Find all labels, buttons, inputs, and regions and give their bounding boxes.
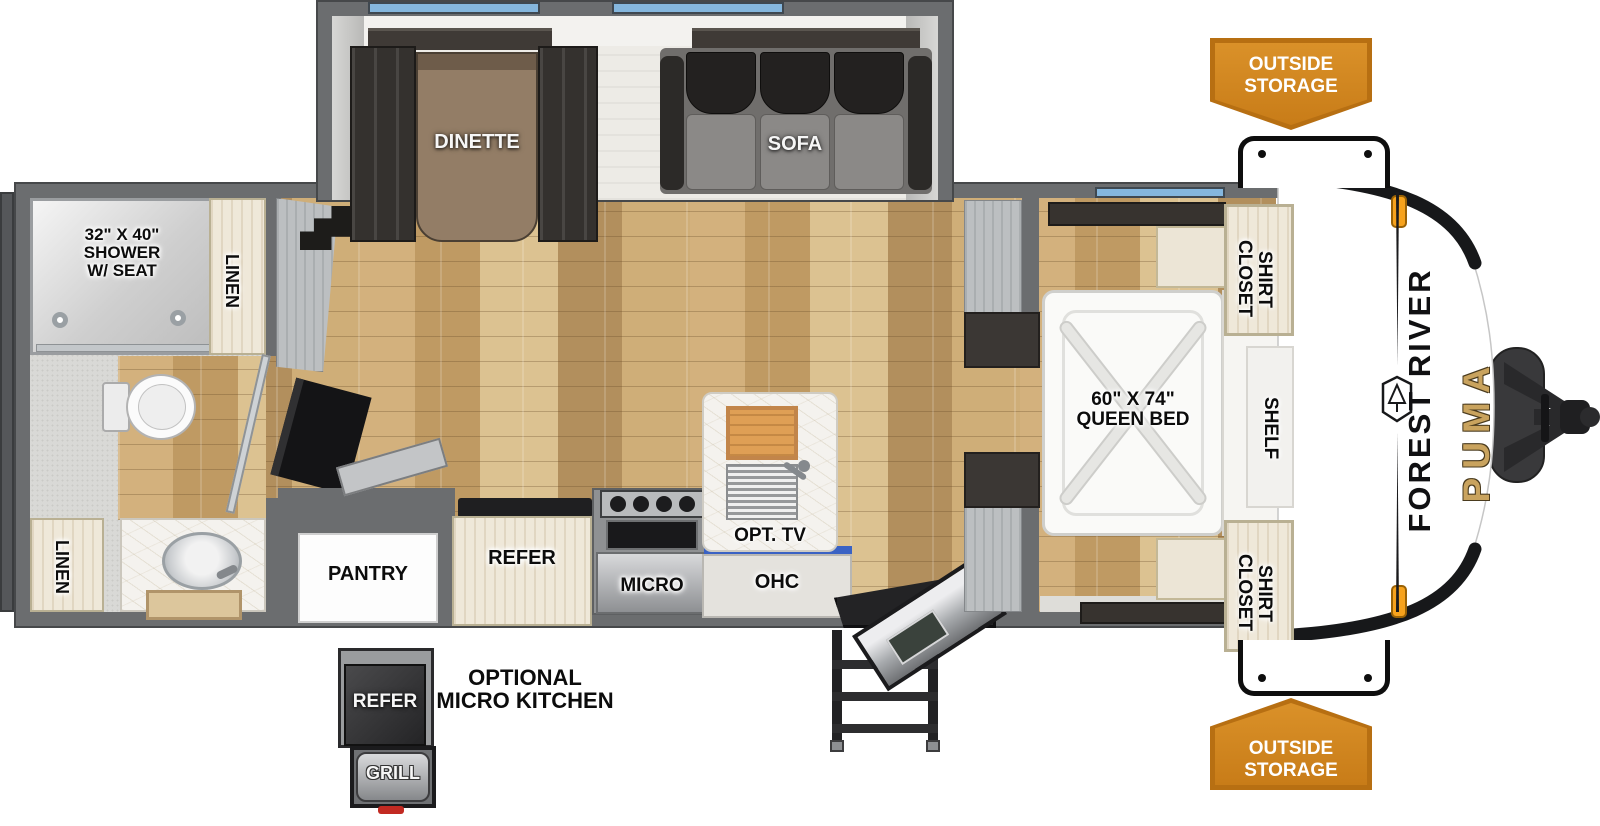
dinette-bench xyxy=(538,46,598,242)
frame-bolt-icon xyxy=(1258,150,1266,158)
sofa-back-cushion xyxy=(834,52,904,114)
ohc-label: OHC xyxy=(702,572,852,593)
burner-icon xyxy=(610,496,626,512)
frame-bracket-top xyxy=(1238,136,1390,188)
shirt-closet-top-label: SHIRT CLOSET xyxy=(1234,214,1274,344)
shower-glass-door xyxy=(36,344,210,352)
rear-bumper xyxy=(0,192,14,612)
cutting-board xyxy=(726,406,798,460)
frame-bolt-icon xyxy=(1364,150,1372,158)
refer-label: REFER xyxy=(452,548,592,569)
frame-bracket-bottom xyxy=(1238,640,1390,696)
bathroom-sink xyxy=(162,532,242,590)
opt-grill-label: GRILL xyxy=(356,764,430,783)
brand-forest-river: FOREST RIVER xyxy=(1402,180,1446,620)
sofa-back-cushion xyxy=(686,52,756,114)
slide-window xyxy=(612,2,784,14)
toilet-seat xyxy=(138,384,186,430)
micro-label: MICRO xyxy=(596,576,708,596)
bedroom-window xyxy=(1095,187,1225,198)
dinette-bench xyxy=(350,46,416,242)
tongue-jack xyxy=(1541,394,1549,442)
refrigerator-top xyxy=(458,498,592,518)
window-valance xyxy=(1080,602,1226,624)
linen-rear-label: LINEN xyxy=(222,226,241,336)
shower-drain-icon xyxy=(52,312,68,328)
stove xyxy=(600,490,704,518)
outside-storage-banner-bottom: OUTSIDE STORAGE xyxy=(1210,698,1372,790)
sofa-valance xyxy=(692,28,920,50)
slide-window xyxy=(368,2,540,14)
opt-grill-knob-icon xyxy=(378,806,404,814)
shower-drain-icon xyxy=(170,310,186,326)
outside-storage-bottom-label: OUTSIDE STORAGE xyxy=(1210,738,1372,782)
bedroom-dresser xyxy=(964,312,1040,368)
optional-micro-kitchen-note: OPTIONAL MICRO KITCHEN xyxy=(420,666,630,712)
opt-tv-label: OPT. TV xyxy=(702,526,838,546)
oven-window xyxy=(606,520,698,550)
shelf-label: SHELF xyxy=(1260,370,1280,486)
entry-step-foot xyxy=(926,740,940,752)
floor-plan: 32" X 40" SHOWER W/ SEAT LINEN LINEN DIN… xyxy=(0,0,1600,826)
outside-storage-top-label: OUTSIDE STORAGE xyxy=(1210,54,1372,98)
jack-knob xyxy=(1580,407,1600,427)
hall-cabinet xyxy=(964,200,1022,320)
outside-storage-banner-top: OUTSIDE STORAGE xyxy=(1210,38,1372,130)
bedroom-dresser xyxy=(964,452,1040,508)
opt-refer-label: REFER xyxy=(344,692,426,712)
sofa-label: SOFA xyxy=(700,134,890,155)
shower-label: 32" X 40" SHOWER W/ SEAT xyxy=(52,226,192,280)
frame-bolt-icon xyxy=(1364,674,1372,682)
burner-icon xyxy=(633,496,649,512)
hall-cabinet xyxy=(964,504,1022,612)
dinette-label: DINETTE xyxy=(416,132,538,153)
burner-icon xyxy=(679,496,695,512)
step-stool xyxy=(146,590,242,620)
kitchen-sink xyxy=(726,464,798,520)
frame-bolt-icon xyxy=(1258,674,1266,682)
sofa-arm xyxy=(660,56,684,190)
sofa-arm xyxy=(908,56,932,190)
shirt-closet-bottom-label: SHIRT CLOSET xyxy=(1234,528,1274,658)
brand-puma: PUMA xyxy=(1456,300,1500,560)
pantry-label: PANTRY xyxy=(298,564,438,585)
refrigerator xyxy=(452,516,592,626)
entry-step-foot xyxy=(830,740,844,752)
queen-bed-label: 60" X 74" QUEEN BED xyxy=(1050,390,1216,430)
sofa-back-cushion xyxy=(760,52,830,114)
entry-step-rung xyxy=(832,692,938,701)
entry-step-rung xyxy=(832,724,938,733)
window-valance xyxy=(1048,202,1226,226)
burner-icon xyxy=(656,496,672,512)
linen-front-label: LINEN xyxy=(52,530,71,604)
